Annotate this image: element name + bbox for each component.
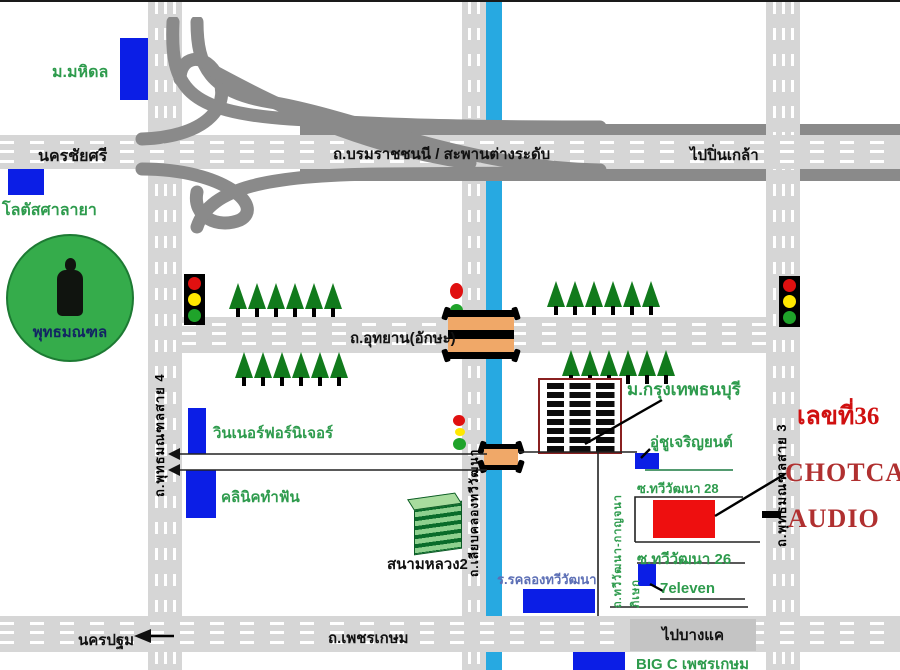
shop-name-line2: AUDIO xyxy=(788,504,880,534)
nakhon-pathom-label: นครปฐม xyxy=(78,628,134,652)
seven-eleven-label: 7eleven xyxy=(660,580,715,597)
school-label: ร.รคลองทวีวัฒนา xyxy=(497,569,597,590)
map-canvas: พุทธมณฑล xyxy=(0,0,900,670)
soi-26-label: ซ.ทวีวัฒนา 26 xyxy=(637,547,731,571)
to-bang-khae-label: ไปบางแค xyxy=(662,623,724,647)
nakhon-chai-si-label: นครชัยศรี xyxy=(38,144,107,169)
utthayan-road-label: ถ.อุทยาน(อักษะ) xyxy=(350,326,456,350)
dental-clinic-label: คลินิคทำฟัน xyxy=(221,485,300,509)
address-number-label: เลขที่36 xyxy=(797,396,879,436)
garage-label: อู่ชูเจริญยนต์ xyxy=(650,430,733,454)
bangkok-thonburi-university-label: ม.กรุงเทพธนบุรี xyxy=(627,376,741,403)
liab-khlong-road-label: ถ.เลียบคลองทวีวัฒนา xyxy=(464,387,483,577)
phutthamonthon-label: พุทธมณฑล xyxy=(8,320,132,344)
winner-furniture-label: วินเนอร์ฟอร์นิเจอร์ xyxy=(213,421,333,445)
to-pin-klao-label: ไปปิ่นเกล้า xyxy=(690,143,759,167)
mahidol-label: ม.มหิดล xyxy=(52,60,108,85)
big-c-label: BIG C เพชรเกษม xyxy=(636,652,749,670)
sai4-road-label: ถ.พุทธมณฑลสาย 4 xyxy=(149,332,170,497)
borommaratchachonnani-label: ถ.บรมราชชนนี / สะพานต่างระดับ xyxy=(333,142,550,166)
thawi-kanchanaphisek-road-label: ถ.ทวีวัฒนา-กาญจนาภิเษก xyxy=(609,468,645,608)
phetkasem-road-label: ถ.เพชรเกษม xyxy=(328,626,409,650)
shop-name-line1: CHOTCAR xyxy=(785,458,900,488)
sanam-luang2-label: สนามหลวง2 xyxy=(387,552,468,576)
soi-28-label: ซ.ทวีวัฒนา 28 xyxy=(637,478,719,499)
lotus-salaya-label: โลตัสศาลายา xyxy=(2,198,97,223)
